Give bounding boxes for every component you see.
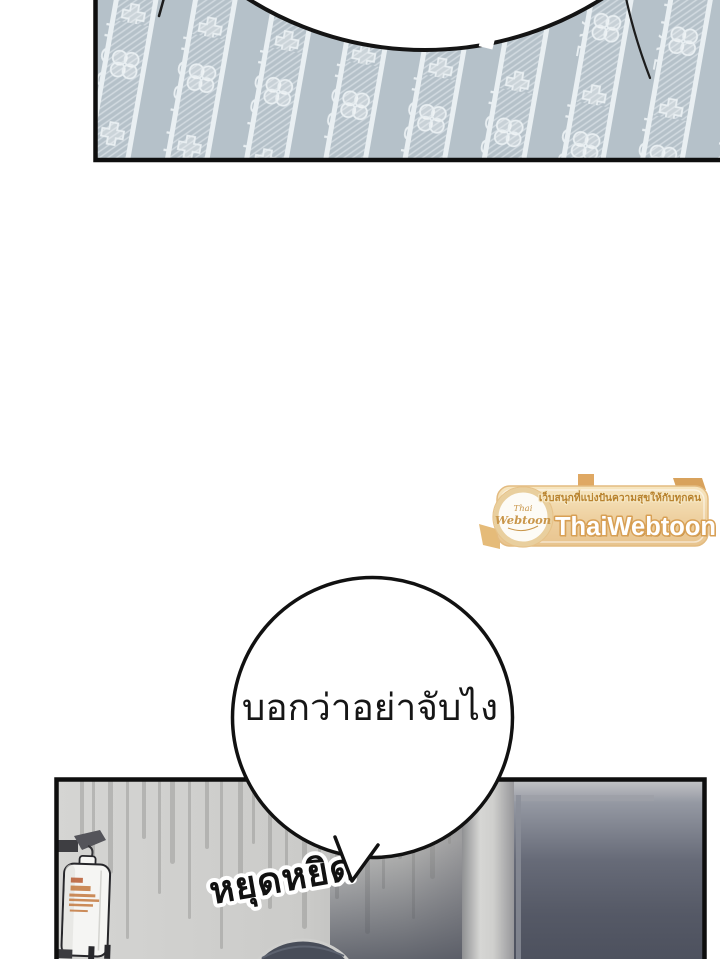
comic-page: HOSPITAL·HOSPITAL — [0, 0, 720, 959]
door-frame-inner-side — [516, 795, 521, 959]
iv-bag-port-1 — [88, 946, 94, 959]
watermark-brand: ThaiWebtoon — [555, 513, 716, 541]
watermark-tagline: เว็บสนุกที่แบ่งปันความสุขให้กับทุกคน — [539, 490, 701, 505]
speech-bubble-text: บอกว่าอย่าจับไง — [242, 686, 498, 728]
logo-script-bottom: Webtoon — [495, 513, 551, 527]
door — [510, 779, 707, 959]
iv-pole-clamp — [56, 840, 78, 852]
iv-bag-port-2 — [104, 945, 110, 959]
iv-bag-port-cap — [58, 949, 72, 958]
door-frame-inner-top — [514, 795, 654, 801]
comic-page-canvas: HOSPITAL·HOSPITAL — [0, 0, 720, 959]
thaiwebtoon-watermark: Thai Webtoon เว็บสนุกที่แบ่งปันความสุขให… — [479, 474, 718, 549]
panel-blanket — [94, 0, 720, 160]
